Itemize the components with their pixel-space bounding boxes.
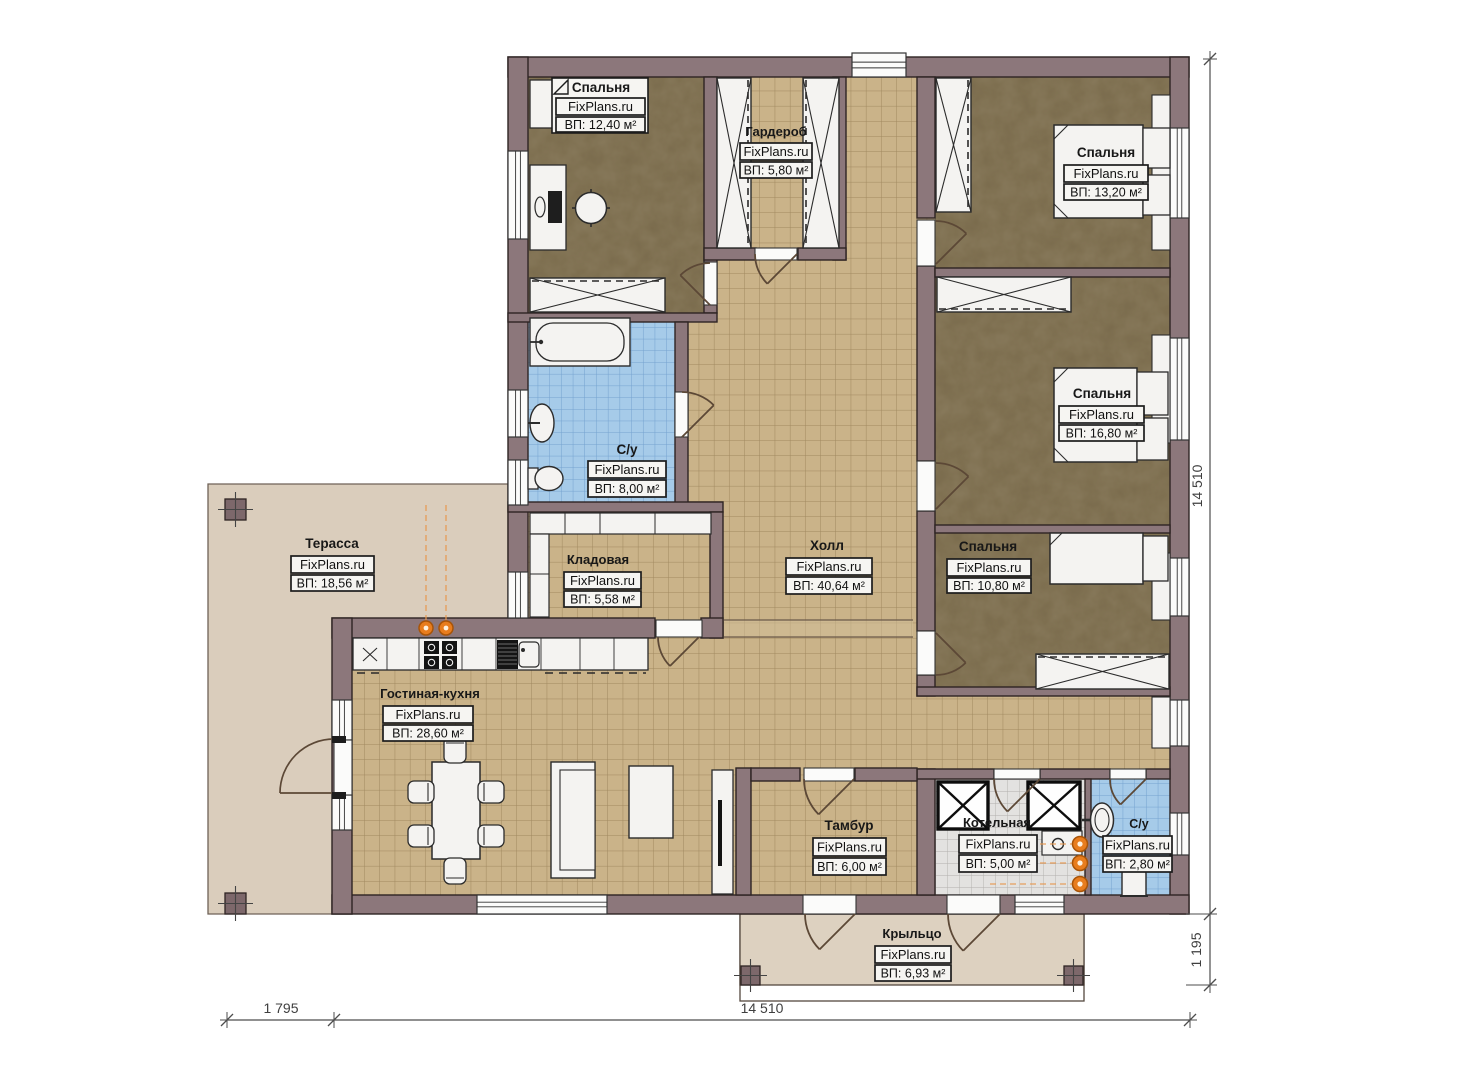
svg-text:FixPlans.ru: FixPlans.ru: [1105, 838, 1170, 853]
svg-text:FixPlans.ru: FixPlans.ru: [570, 573, 635, 588]
svg-text:FixPlans.ru: FixPlans.ru: [956, 560, 1021, 575]
svg-text:Гостиная-кухня: Гостиная-кухня: [380, 686, 480, 701]
svg-text:FixPlans.ru: FixPlans.ru: [300, 557, 365, 572]
svg-text:FixPlans.ru: FixPlans.ru: [1069, 407, 1134, 422]
svg-text:FixPlans.ru: FixPlans.ru: [796, 559, 861, 574]
svg-text:ВП: 40,64 м²: ВП: 40,64 м²: [793, 579, 865, 593]
svg-text:ВП: 2,80 м²: ВП: 2,80 м²: [1105, 858, 1170, 872]
svg-text:ВП: 6,00 м²: ВП: 6,00 м²: [817, 860, 882, 874]
svg-text:FixPlans.ru: FixPlans.ru: [1073, 166, 1138, 181]
svg-text:С/у: С/у: [1129, 817, 1149, 831]
svg-text:Спальня: Спальня: [959, 539, 1017, 554]
svg-text:FixPlans.ru: FixPlans.ru: [568, 99, 633, 114]
svg-text:ВП: 13,20 м²: ВП: 13,20 м²: [1070, 186, 1142, 200]
svg-text:ВП: 28,60 м²: ВП: 28,60 м²: [392, 727, 464, 741]
svg-text:Гардероб: Гардероб: [745, 124, 806, 139]
svg-text:FixPlans.ru: FixPlans.ru: [965, 837, 1030, 852]
svg-text:FixPlans.ru: FixPlans.ru: [594, 462, 659, 477]
svg-text:14 510: 14 510: [741, 1000, 784, 1016]
svg-text:Котельная: Котельная: [963, 815, 1031, 830]
svg-text:ВП: 8,00 м²: ВП: 8,00 м²: [595, 482, 660, 496]
svg-text:Тамбур: Тамбур: [825, 818, 874, 833]
svg-text:Кладовая: Кладовая: [567, 552, 629, 567]
svg-text:ВП: 5,00 м²: ВП: 5,00 м²: [966, 857, 1031, 871]
svg-text:ВП: 18,56 м²: ВП: 18,56 м²: [297, 577, 369, 591]
svg-text:FixPlans.ru: FixPlans.ru: [817, 840, 882, 855]
svg-text:ВП: 16,80 м²: ВП: 16,80 м²: [1066, 427, 1138, 441]
svg-text:Крыльцо: Крыльцо: [882, 926, 941, 941]
svg-text:ВП: 5,80 м²: ВП: 5,80 м²: [744, 164, 809, 178]
svg-text:С/у: С/у: [616, 442, 638, 457]
svg-text:ВП: 12,40 м²: ВП: 12,40 м²: [565, 118, 637, 132]
svg-text:ВП: 10,80 м²: ВП: 10,80 м²: [953, 579, 1025, 593]
svg-text:Холл: Холл: [810, 538, 844, 553]
svg-text:Спальня: Спальня: [1077, 145, 1135, 160]
svg-text:FixPlans.ru: FixPlans.ru: [395, 707, 460, 722]
svg-text:ВП: 5,58 м²: ВП: 5,58 м²: [570, 593, 635, 607]
svg-text:ВП: 6,93 м²: ВП: 6,93 м²: [881, 967, 946, 981]
svg-text:FixPlans.ru: FixPlans.ru: [880, 947, 945, 962]
svg-text:1 795: 1 795: [263, 1000, 298, 1016]
svg-text:Терасса: Терасса: [305, 536, 359, 551]
svg-text:1 195: 1 195: [1188, 932, 1204, 967]
svg-text:FixPlans.ru: FixPlans.ru: [743, 144, 808, 159]
svg-text:Спальня: Спальня: [1073, 386, 1131, 401]
svg-text:Спальня: Спальня: [572, 80, 630, 95]
svg-text:14 510: 14 510: [1189, 464, 1205, 507]
